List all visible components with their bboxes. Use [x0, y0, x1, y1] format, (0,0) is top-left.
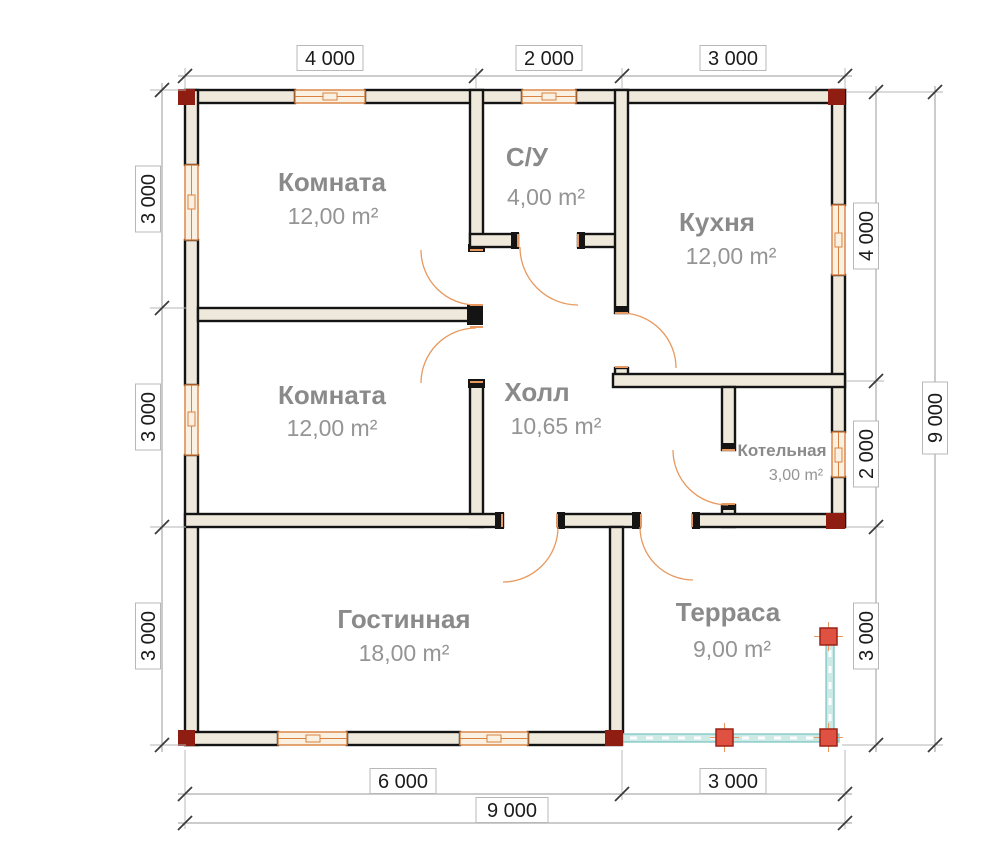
- wall-segment: [185, 90, 295, 103]
- wall-segment: [470, 383, 483, 527]
- corner-marker: [828, 89, 845, 105]
- door-arc-boiler: [673, 450, 728, 505]
- wall-segment: [722, 387, 735, 450]
- floor-plan-page: 4 000 2 000 3 000 3 000 3 000 3 000: [0, 0, 1000, 865]
- dim-left-2: 3 000: [138, 392, 160, 442]
- wall-segment: [615, 90, 628, 313]
- wall-segment: [185, 732, 278, 745]
- corner-marker: [605, 730, 623, 746]
- dim-right-total: 9 000: [925, 393, 947, 443]
- room1-area: 12,00 m²: [288, 203, 379, 229]
- terrace-post: [814, 622, 843, 651]
- dim-bottom-2: 3 000: [708, 771, 758, 793]
- floor-plan-drawing: 4 000 2 000 3 000 3 000 3 000 3 000: [0, 0, 1000, 865]
- dim-top-1: 4 000: [305, 48, 355, 70]
- wall-end-cap: [467, 304, 483, 325]
- terrace-name: Терраса: [676, 597, 781, 627]
- wall-segment: [558, 514, 640, 527]
- dimension-top: 4 000 2 000 3 000: [178, 46, 852, 89]
- living-name: Гостинная: [337, 604, 470, 634]
- window-room2-left: [185, 385, 198, 455]
- terrace-post: [814, 723, 843, 752]
- door-arc-room1: [421, 250, 476, 305]
- door-arc-kitchen: [621, 313, 676, 368]
- wall-segment: [470, 234, 518, 247]
- boiler-area: 3,00 m²: [769, 467, 824, 484]
- dimension-right: 4 000 2 000 3 000 9 000: [842, 85, 948, 752]
- dim-left-3: 3 000: [138, 611, 160, 661]
- door-arc-room2: [421, 328, 476, 383]
- wall-segment: [470, 90, 483, 250]
- wall-segment: [610, 527, 623, 732]
- door-arc-living: [503, 527, 558, 582]
- wall-segment: [832, 275, 845, 432]
- dim-bottom-total: 9 000: [487, 800, 537, 822]
- window-living-bottom-2: [460, 732, 528, 745]
- dim-left-1: 3 000: [138, 174, 160, 224]
- window-living-bottom-1: [278, 732, 347, 745]
- dim-top-3: 3 000: [708, 48, 758, 70]
- wall-segment: [185, 514, 503, 527]
- dimension-bottom: 6 000 3 000 9 000: [178, 750, 852, 830]
- wall-end-cap: [468, 379, 485, 388]
- room2-name: Комната: [278, 380, 387, 410]
- dim-right-1: 4 000: [856, 211, 878, 261]
- bathroom-name: С/У: [506, 142, 549, 172]
- dim-right-3: 3 000: [856, 611, 878, 661]
- dimension-left: 3 000 3 000 3 000: [136, 83, 187, 752]
- wall-end-cap: [557, 512, 565, 529]
- wall-segment: [365, 90, 522, 103]
- wall-segment: [832, 90, 845, 205]
- window-kitchen-right: [832, 205, 845, 275]
- wall-segment: [198, 308, 470, 321]
- window-boiler-right: [832, 432, 845, 477]
- boiler-name: Котельная: [737, 441, 826, 460]
- hall-area: 10,65 m²: [511, 413, 602, 439]
- room1-name: Комната: [278, 167, 387, 197]
- wall-segment: [185, 455, 198, 745]
- wall-end-cap: [632, 512, 641, 529]
- wall-segment: [693, 514, 845, 527]
- door-arcs: [421, 234, 735, 582]
- terrace-area: 9,00 m²: [693, 636, 771, 662]
- living-area: 18,00 m²: [359, 640, 450, 666]
- wall-segment: [613, 374, 845, 387]
- dim-top-2: 2 000: [524, 48, 574, 70]
- wall-segment: [185, 240, 198, 385]
- corner-marker: [178, 730, 195, 746]
- window-room1-top: [295, 90, 365, 103]
- window-room1-left: [185, 165, 198, 240]
- wall-end-cap: [692, 512, 700, 529]
- bathroom-area: 4,00 m²: [507, 184, 585, 210]
- dim-bottom-1: 6 000: [378, 771, 428, 793]
- door-arc-terrace-entry: [640, 527, 693, 580]
- wall-segment: [347, 732, 460, 745]
- room-labels: Комната 12,00 m² С/У 4,00 m² Кухня 12,00…: [278, 142, 827, 666]
- hall-name: Холл: [504, 377, 569, 407]
- corner-marker: [178, 89, 195, 105]
- kitchen-area: 12,00 m²: [686, 243, 777, 269]
- door-arc-bathroom: [520, 247, 578, 305]
- kitchen-name: Кухня: [679, 207, 755, 237]
- room2-area: 12,00 m²: [287, 415, 378, 441]
- dim-right-2: 2 000: [856, 429, 878, 479]
- terrace-post: [710, 723, 739, 752]
- corner-marker: [826, 513, 845, 529]
- window-bathroom-top: [522, 90, 576, 103]
